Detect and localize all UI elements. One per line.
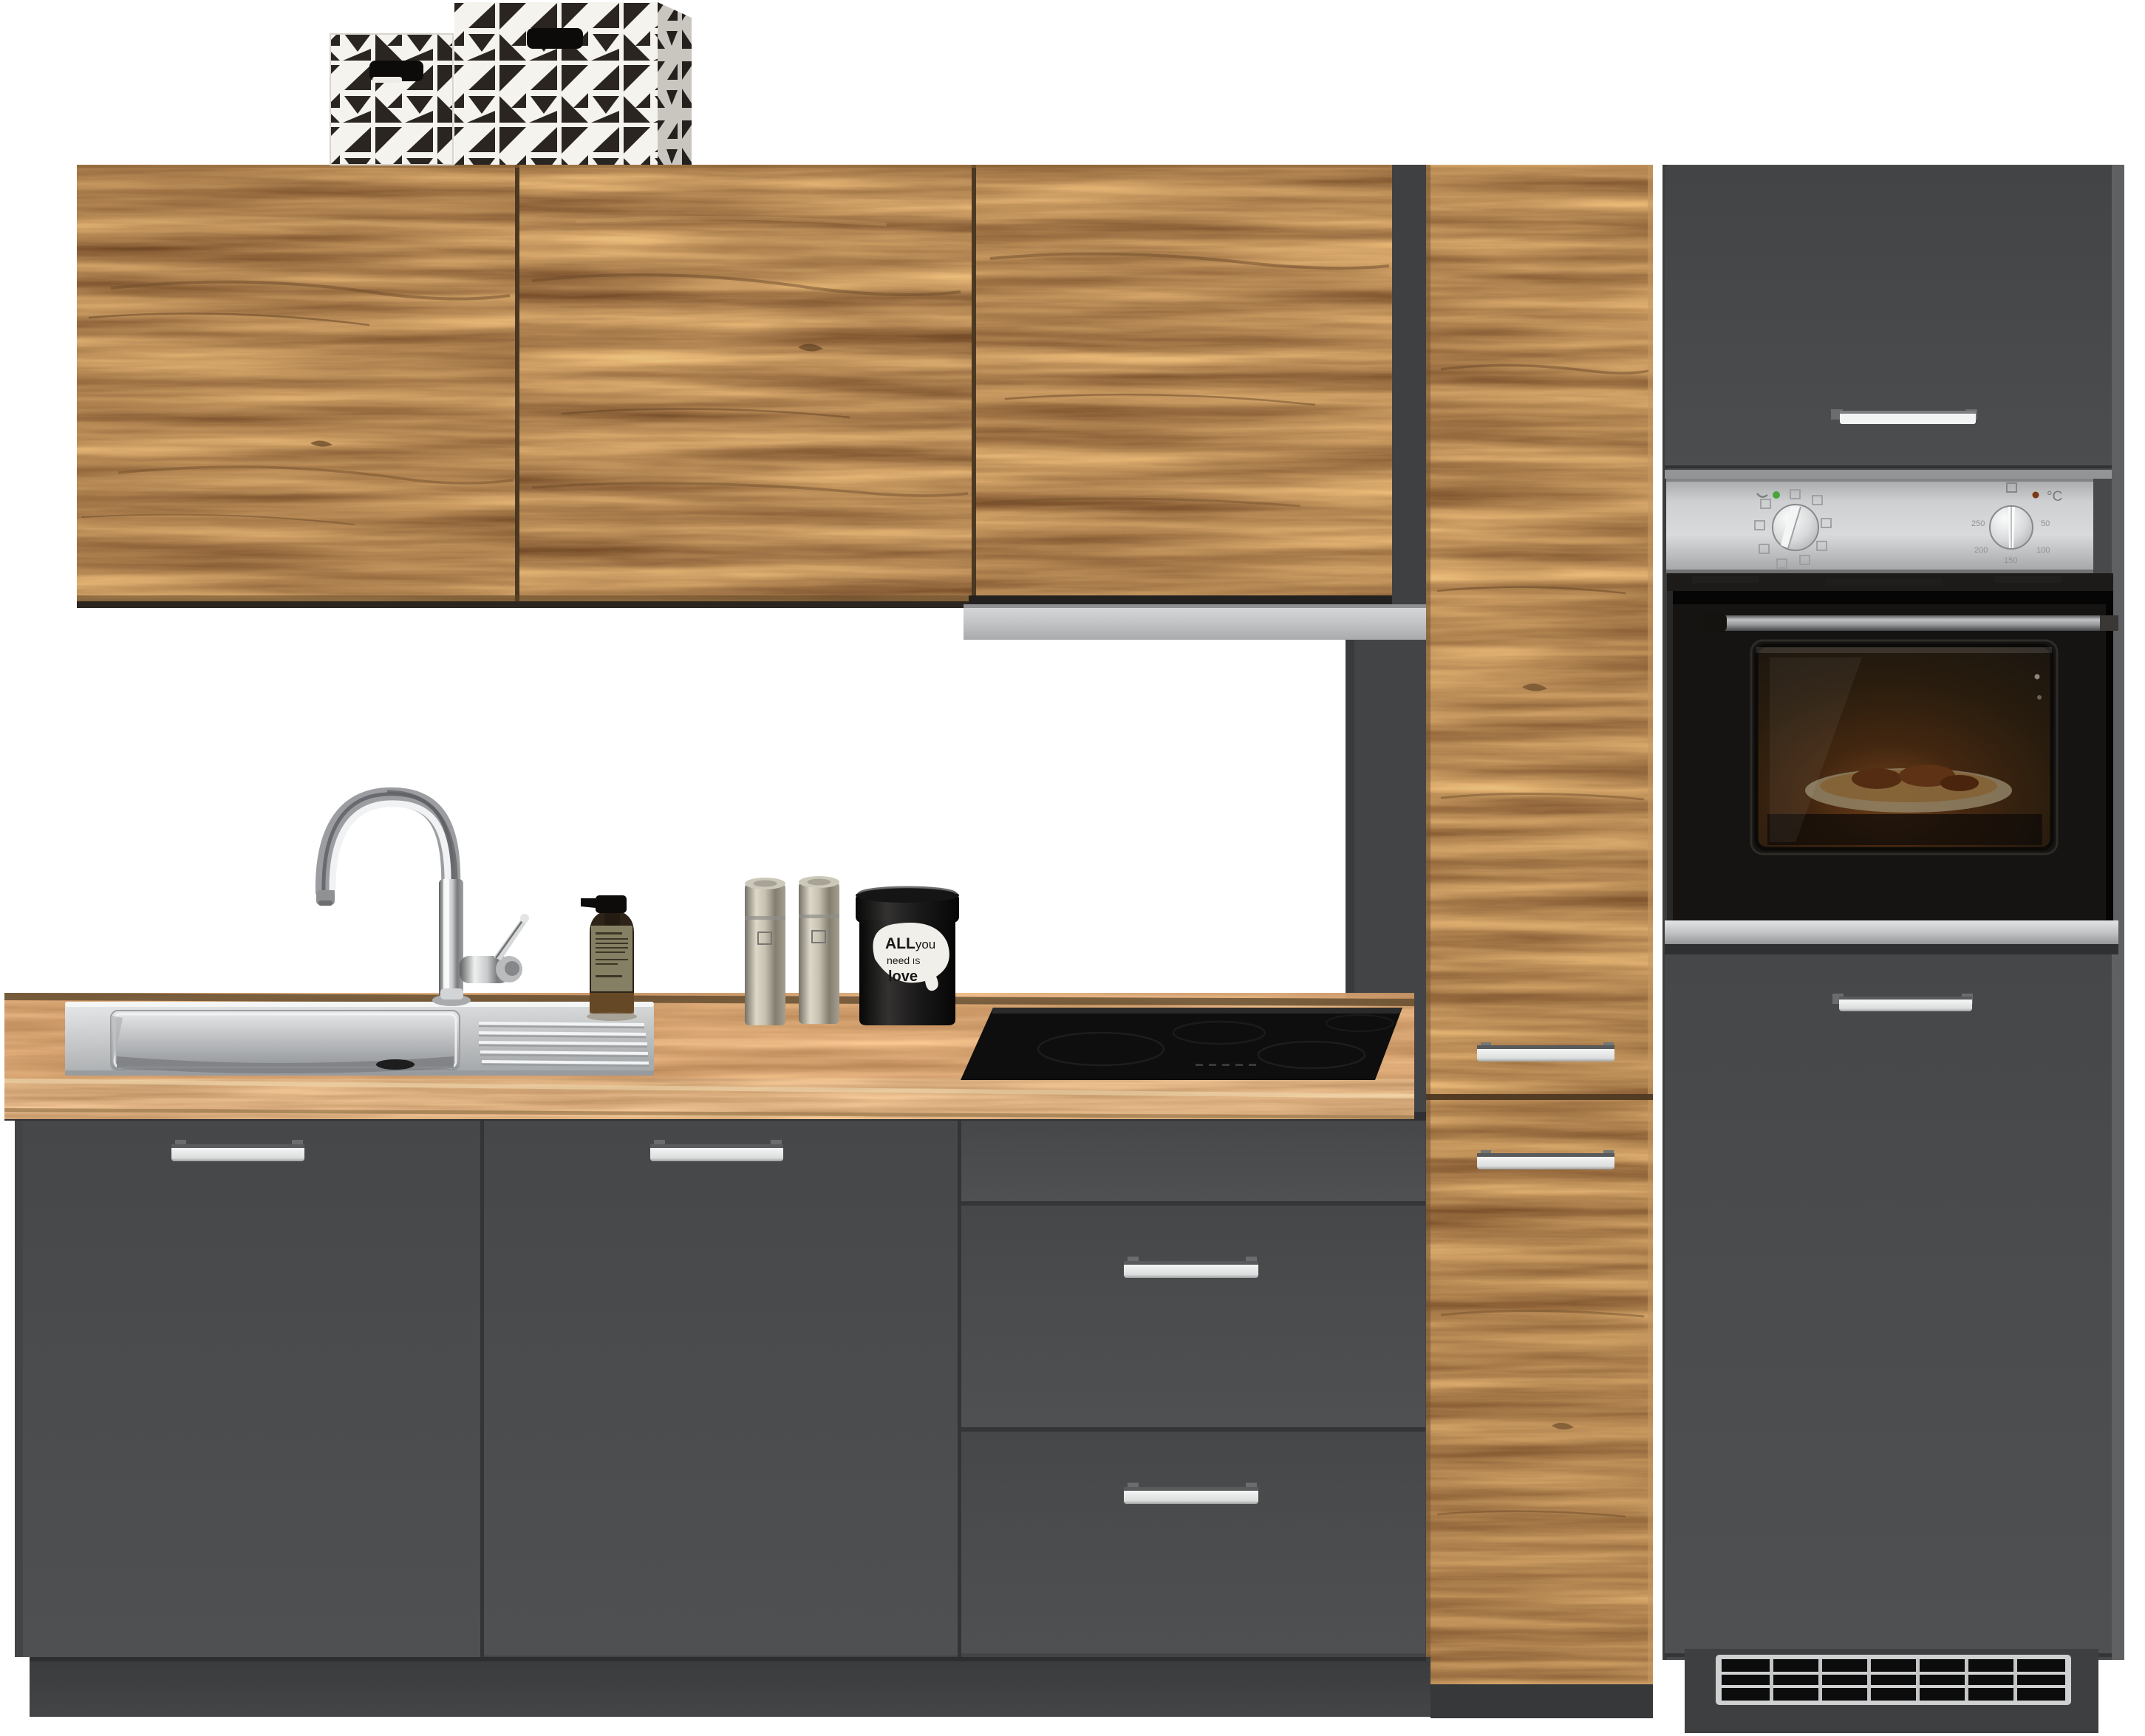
svg-text:100: 100	[2036, 546, 2050, 555]
svg-text:250: 250	[1971, 519, 1985, 528]
svg-text:ALLyou: ALLyou	[885, 935, 935, 952]
svg-text:150: 150	[2004, 556, 2017, 565]
svg-text:50: 50	[2041, 519, 2050, 528]
svg-text:200: 200	[1974, 546, 1988, 555]
svg-text:love: love	[888, 968, 918, 985]
svg-text:°C: °C	[2047, 489, 2062, 505]
